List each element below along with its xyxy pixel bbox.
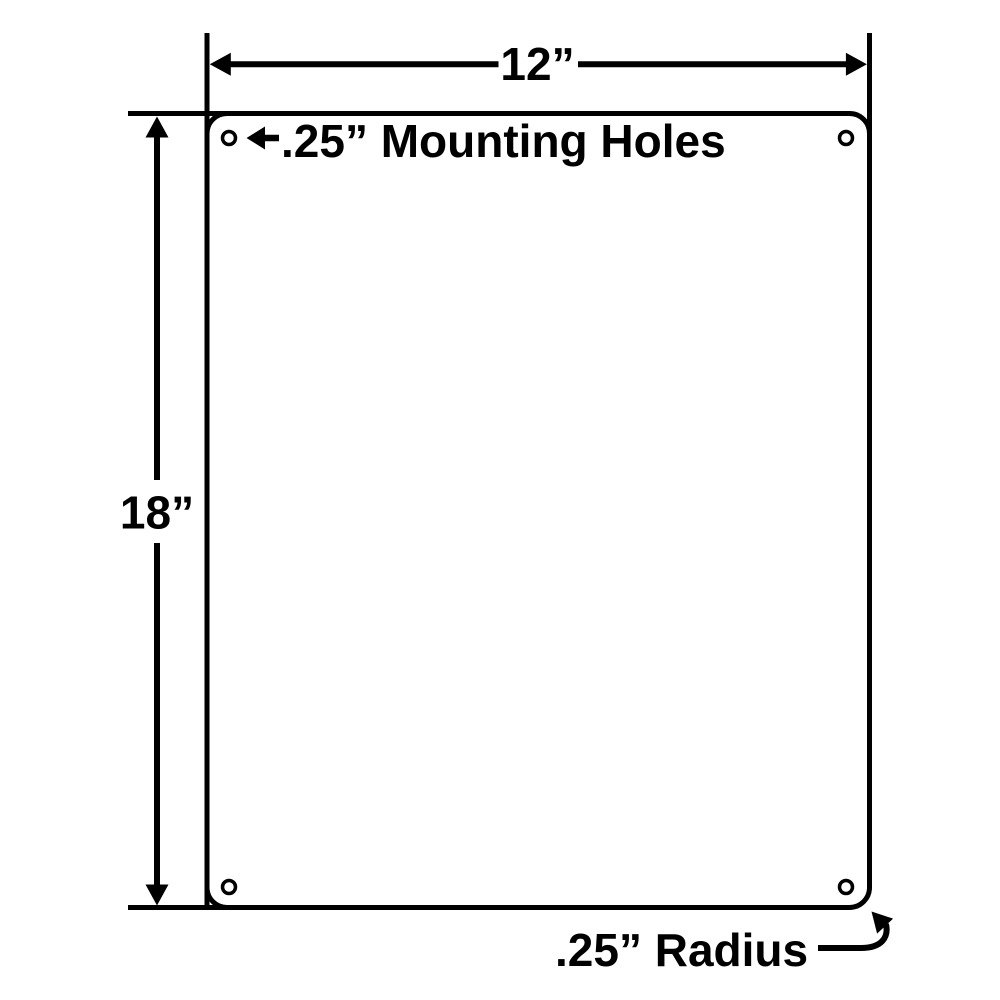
- svg-text:12”: 12”: [500, 38, 574, 90]
- svg-text:.25” Mounting Holes: .25” Mounting Holes: [281, 115, 726, 167]
- svg-text:.25” Radius: .25” Radius: [555, 924, 808, 976]
- svg-text:18”: 18”: [120, 487, 194, 539]
